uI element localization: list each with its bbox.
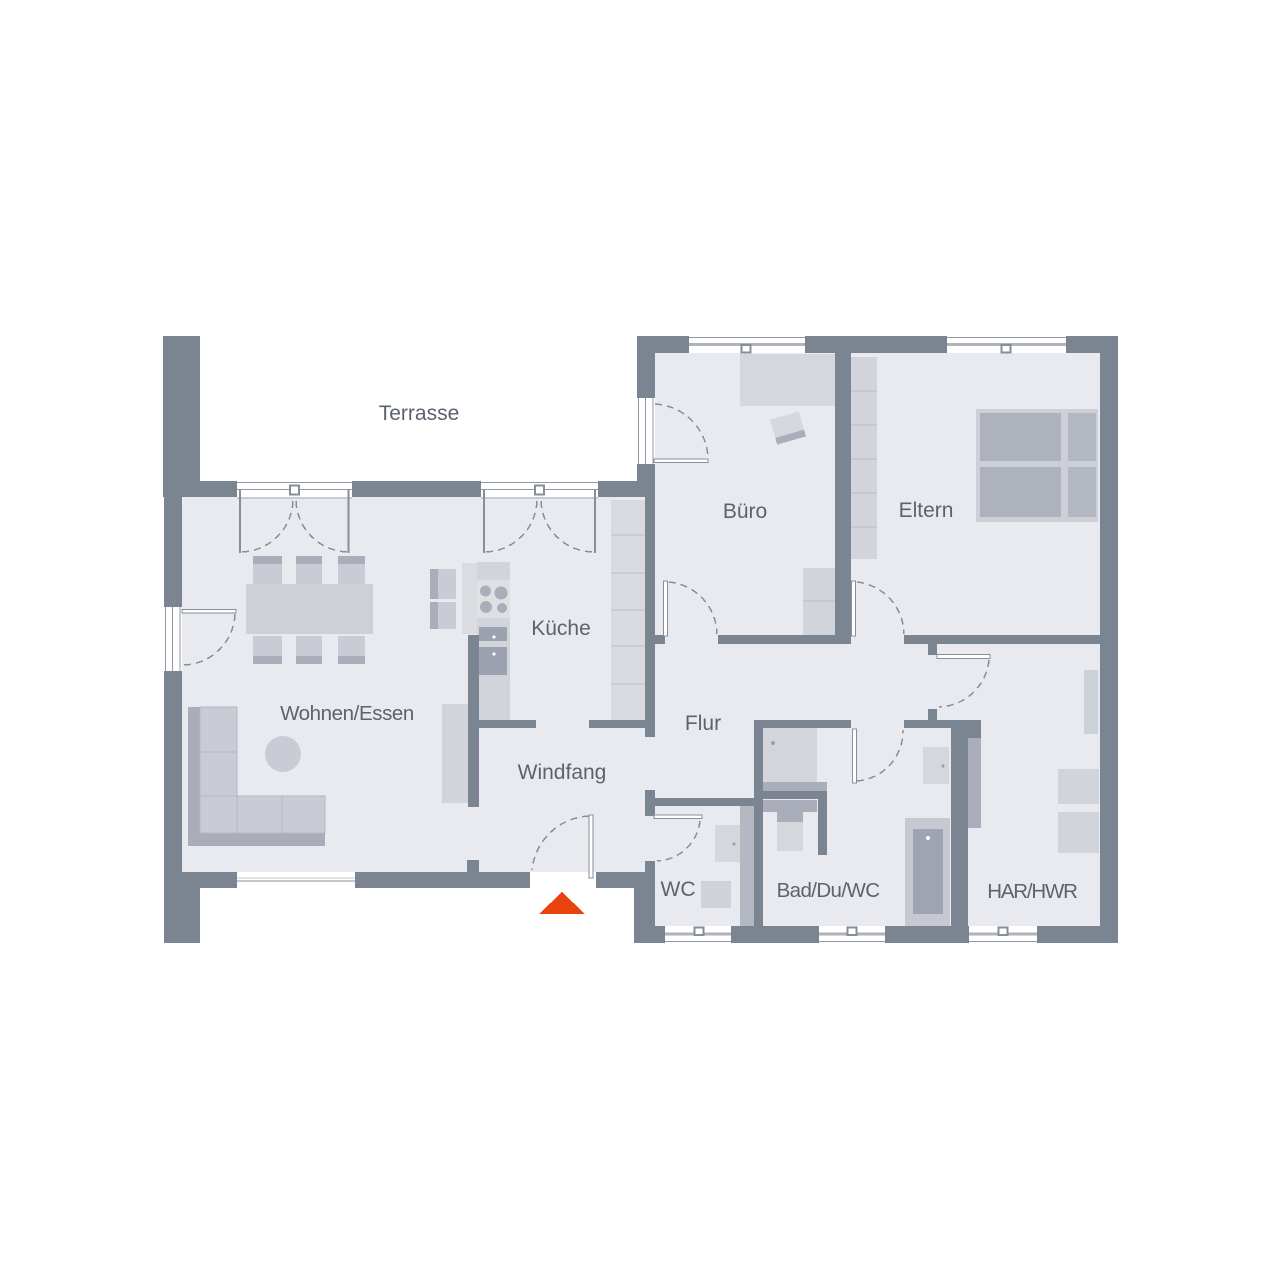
svg-text:Küche: Küche (531, 617, 591, 640)
svg-text:Wohnen/Essen: Wohnen/Essen (280, 702, 414, 725)
svg-text:Windfang: Windfang (518, 761, 607, 784)
svg-text:HAR/HWR: HAR/HWR (987, 880, 1077, 903)
svg-text:Eltern: Eltern (899, 499, 954, 522)
svg-text:Bad/Du/WC: Bad/Du/WC (777, 879, 881, 902)
svg-text:Terrasse: Terrasse (379, 402, 460, 425)
svg-text:Flur: Flur (685, 712, 721, 735)
svg-text:WC: WC (661, 878, 696, 901)
svg-text:Büro: Büro (723, 500, 767, 523)
